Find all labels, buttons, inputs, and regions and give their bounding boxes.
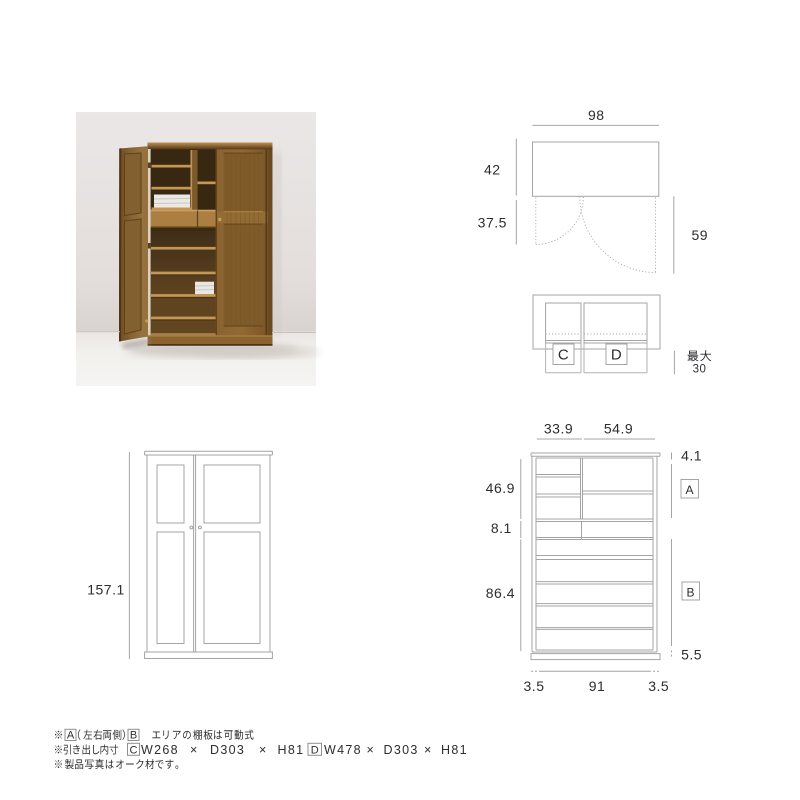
svg-text:98: 98: [588, 107, 605, 123]
svg-text:54.9: 54.9: [604, 420, 633, 436]
svg-text:59: 59: [692, 227, 709, 243]
svg-text:3.5: 3.5: [648, 678, 669, 694]
svg-text:91: 91: [589, 678, 606, 694]
svg-text:33.9: 33.9: [544, 420, 573, 436]
svg-text:C: C: [558, 347, 569, 364]
svg-text:37.5: 37.5: [478, 214, 507, 230]
svg-text:B: B: [686, 585, 695, 599]
svg-text:D: D: [611, 347, 622, 364]
svg-text:H81: H81: [278, 743, 305, 757]
svg-text:D: D: [311, 744, 319, 756]
svg-text:A: A: [67, 729, 75, 741]
svg-text:B: B: [130, 729, 137, 741]
svg-text:A: A: [685, 483, 694, 497]
svg-text:30: 30: [693, 364, 707, 376]
svg-text:86.4: 86.4: [486, 585, 515, 601]
svg-text:4.1: 4.1: [681, 448, 702, 464]
svg-text:×: ×: [259, 743, 266, 757]
svg-text:×: ×: [190, 743, 197, 757]
svg-text:5.5: 5.5: [681, 646, 702, 662]
svg-text:×: ×: [424, 743, 431, 757]
svg-text:H81: H81: [441, 743, 468, 757]
svg-text:×: ×: [367, 743, 374, 757]
svg-text:3.5: 3.5: [524, 678, 545, 694]
svg-text:C: C: [130, 744, 138, 756]
svg-text:D303: D303: [384, 743, 419, 757]
svg-text:W268: W268: [141, 743, 179, 757]
svg-text:42: 42: [484, 161, 501, 177]
svg-text:8.1: 8.1: [491, 520, 512, 536]
svg-text:D303: D303: [210, 743, 245, 757]
svg-text:46.9: 46.9: [486, 480, 515, 496]
svg-text:W478: W478: [324, 743, 362, 757]
svg-text:157.1: 157.1: [87, 581, 125, 597]
